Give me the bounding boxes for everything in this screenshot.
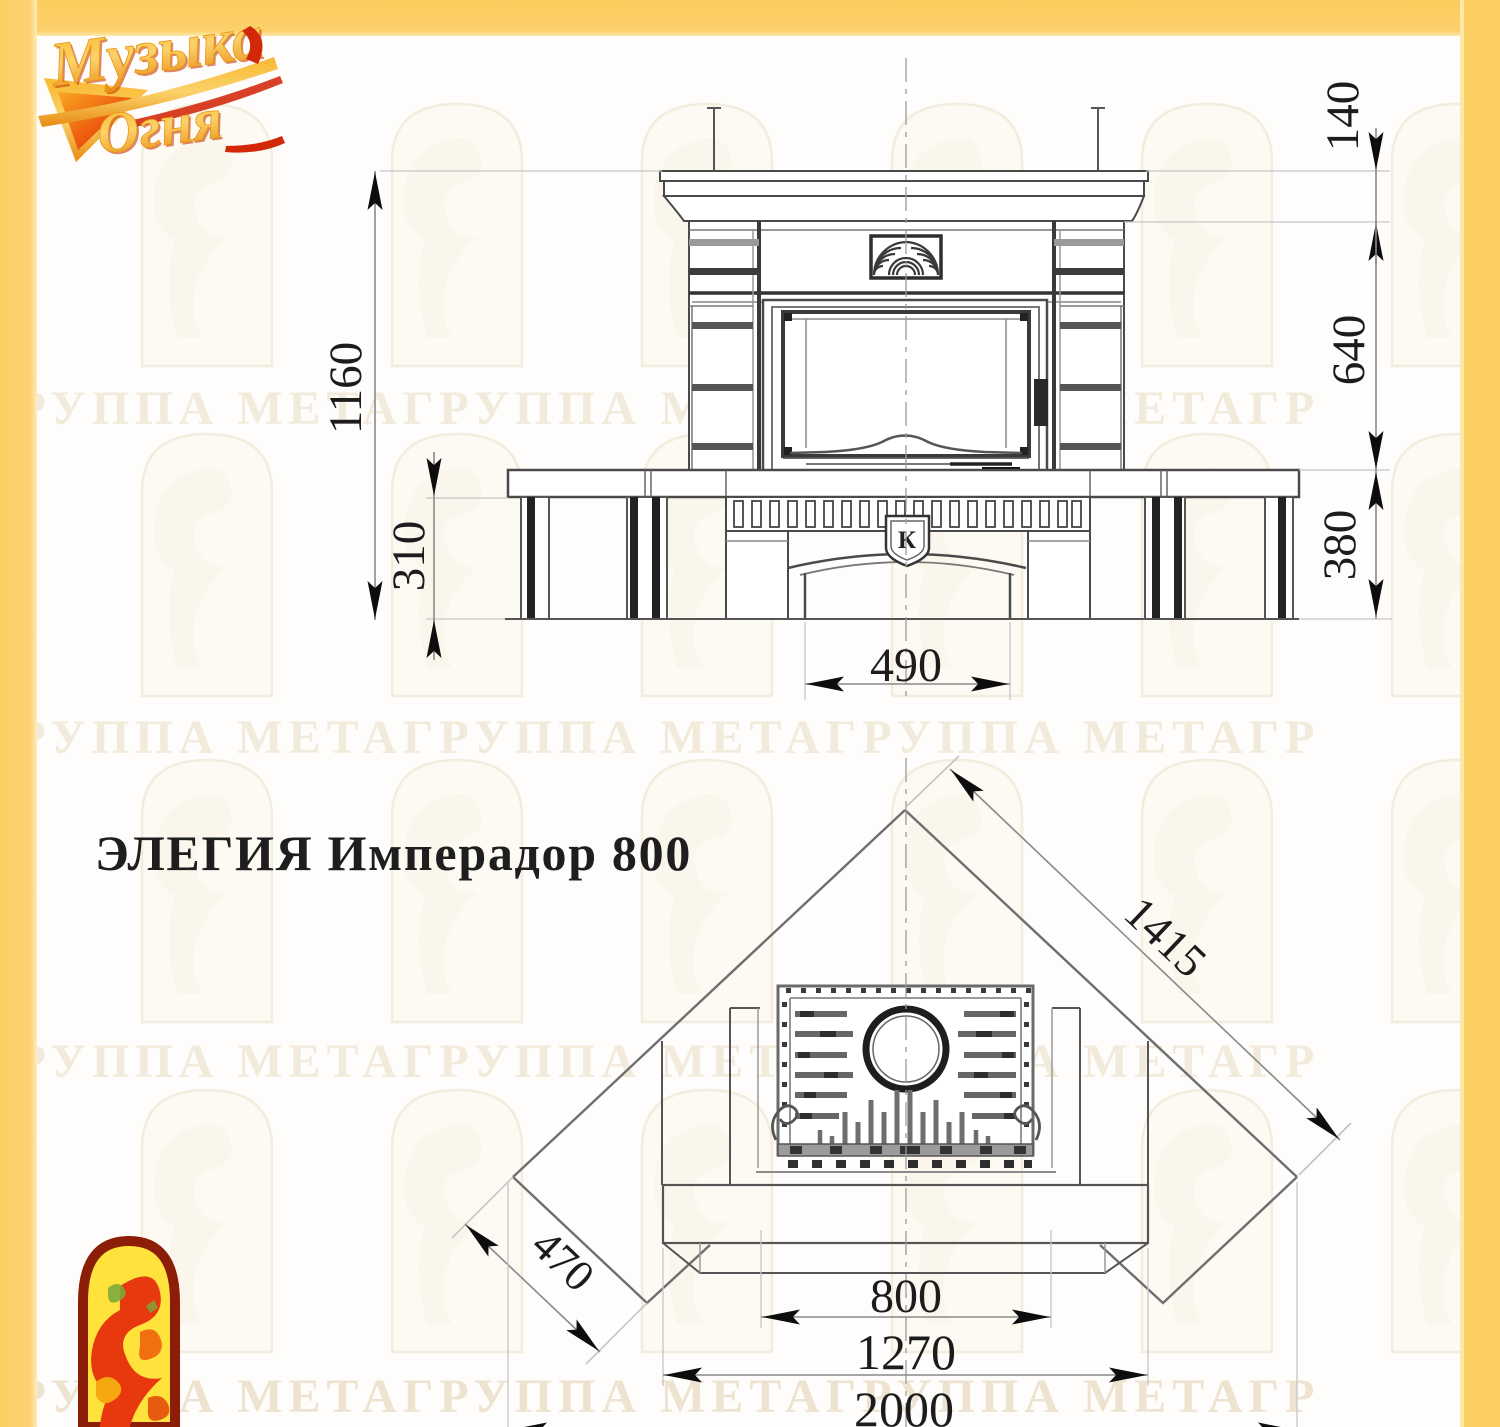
svg-text:380: 380 <box>1314 510 1366 581</box>
svg-text:140: 140 <box>1317 81 1369 152</box>
svg-text:2000: 2000 <box>854 1381 954 1427</box>
svg-text:К: К <box>898 527 916 554</box>
svg-text:310: 310 <box>383 521 435 592</box>
svg-text:640: 640 <box>1323 315 1375 386</box>
svg-text:1160: 1160 <box>320 342 372 434</box>
svg-text:800: 800 <box>870 1270 942 1323</box>
svg-text:ГРУППА МЕТАГРУППА МЕТАГРУППА М: ГРУППА МЕТАГРУППА МЕТАГРУППА МЕТАГР <box>0 711 1320 764</box>
svg-text:ГРУППА МЕТАГРУППА МЕТАГРУППА М: ГРУППА МЕТАГРУППА МЕТАГРУППА МЕТАГР <box>0 1035 1320 1088</box>
svg-text:1270: 1270 <box>856 1324 956 1380</box>
svg-text:490: 490 <box>870 639 942 692</box>
svg-text:ЭЛЕГИЯ Имперадор 800: ЭЛЕГИЯ Имперадор 800 <box>95 825 692 881</box>
